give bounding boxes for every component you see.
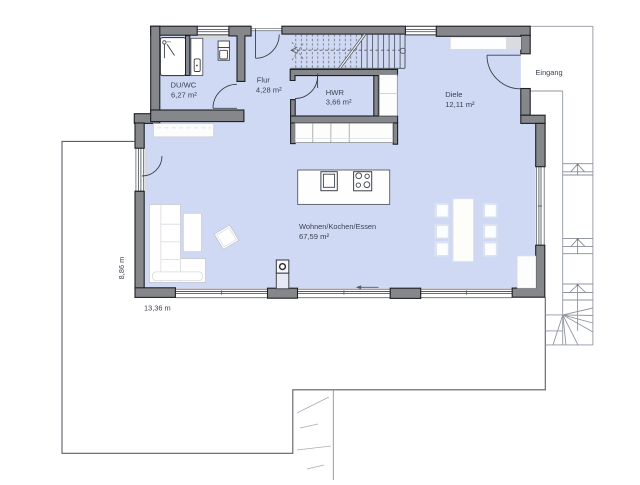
svg-text:3,66 m²: 3,66 m² [326, 98, 352, 107]
svg-text:Flur: Flur [257, 76, 271, 85]
svg-text:12,11 m²: 12,11 m² [445, 100, 475, 109]
svg-text:Eingang: Eingang [536, 68, 563, 77]
svg-text:Diele: Diele [445, 90, 462, 99]
svg-text:8,86 m: 8,86 m [117, 257, 126, 280]
svg-text:HWR: HWR [326, 88, 345, 97]
svg-text:6,27 m²: 6,27 m² [171, 91, 197, 100]
svg-text:Wohnen/Kochen/Essen: Wohnen/Kochen/Essen [299, 222, 376, 231]
svg-text:67,59 m²: 67,59 m² [299, 232, 329, 241]
svg-text:DU/WC: DU/WC [171, 80, 197, 89]
svg-text:4,28 m²: 4,28 m² [256, 85, 282, 94]
svg-text:13,36 m: 13,36 m [144, 304, 171, 313]
